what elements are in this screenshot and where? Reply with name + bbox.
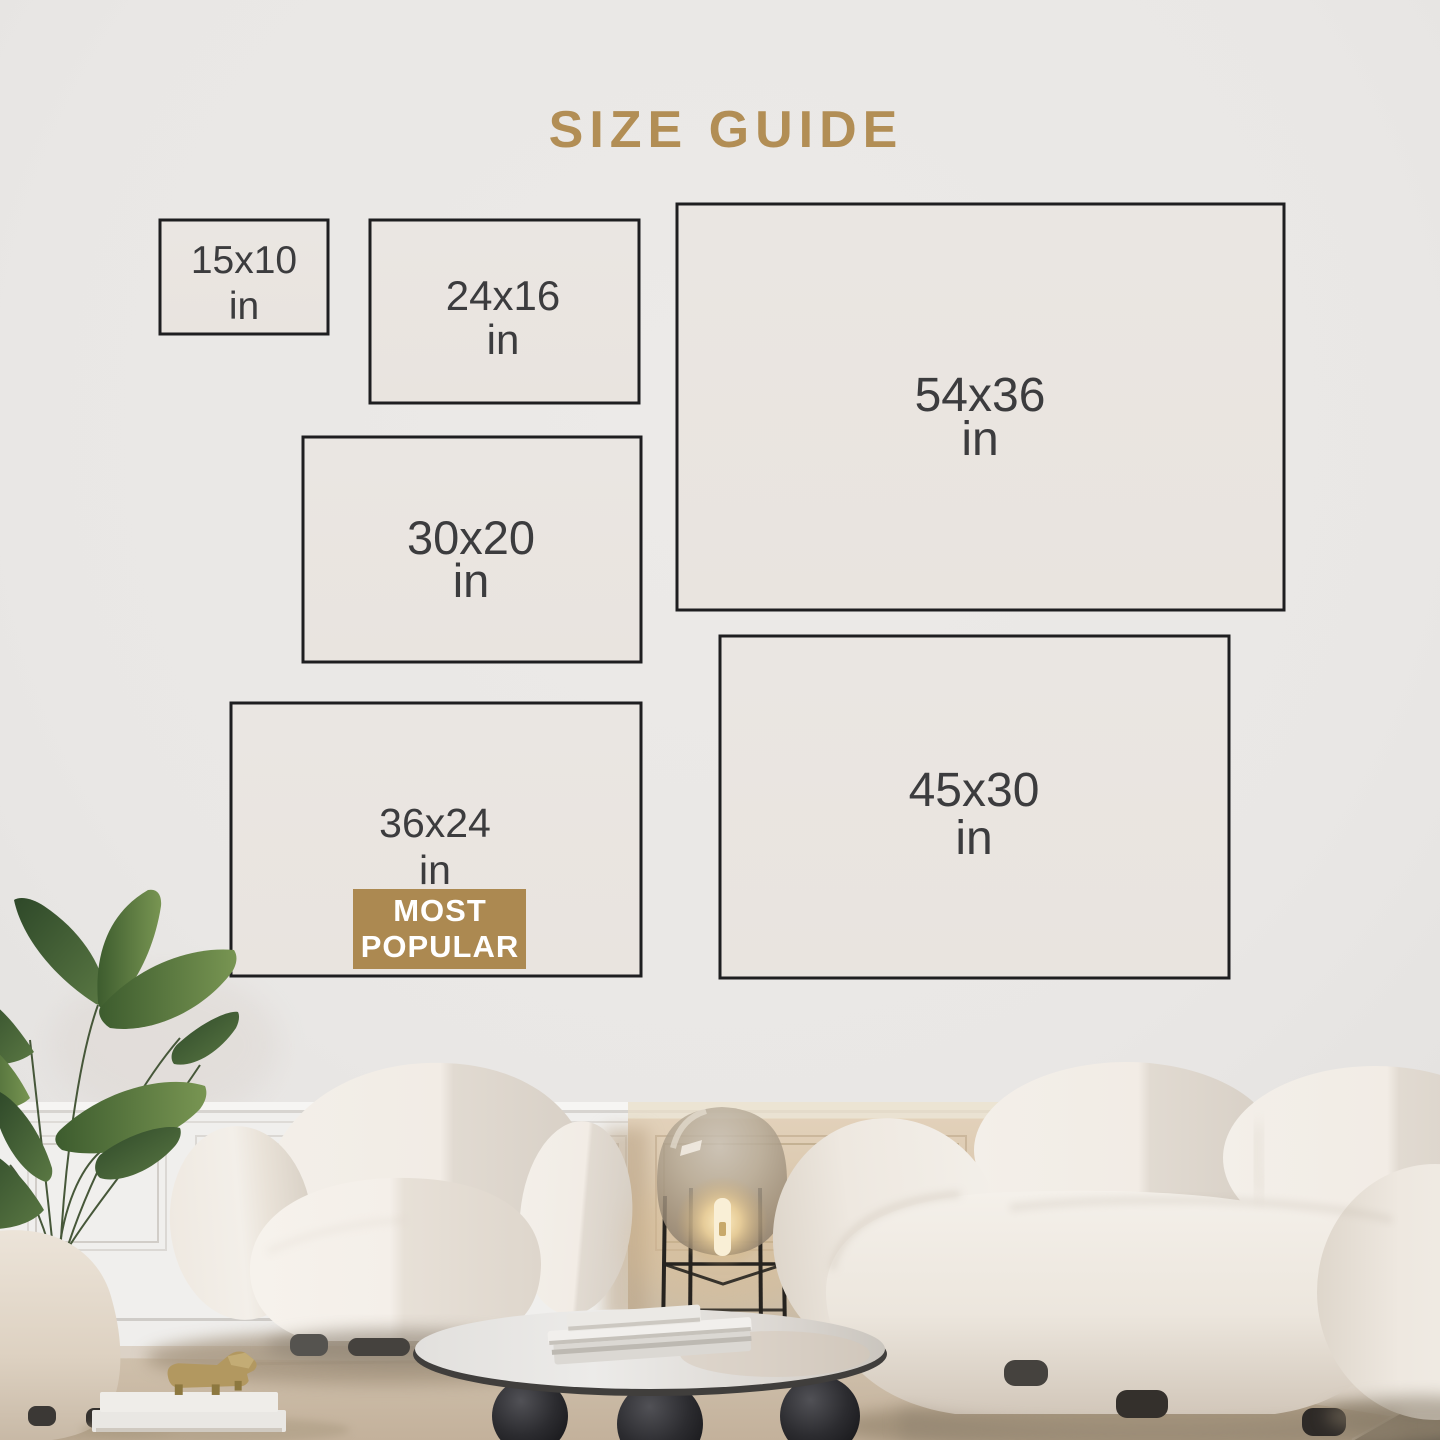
svg-text:SIZE GUIDE: SIZE GUIDE bbox=[549, 101, 904, 159]
svg-text:45x30: 45x30 bbox=[909, 764, 1040, 817]
svg-text:in: in bbox=[229, 285, 259, 328]
svg-text:36x24: 36x24 bbox=[379, 800, 491, 846]
svg-text:in: in bbox=[453, 554, 490, 607]
svg-text:in: in bbox=[961, 413, 998, 466]
svg-text:in: in bbox=[419, 847, 451, 893]
svg-text:MOST: MOST bbox=[393, 893, 487, 928]
svg-text:POPULAR: POPULAR bbox=[361, 929, 520, 964]
svg-text:in: in bbox=[487, 316, 520, 363]
svg-text:in: in bbox=[955, 812, 992, 865]
svg-text:15x10: 15x10 bbox=[191, 239, 297, 282]
svg-text:24x16: 24x16 bbox=[446, 272, 560, 319]
